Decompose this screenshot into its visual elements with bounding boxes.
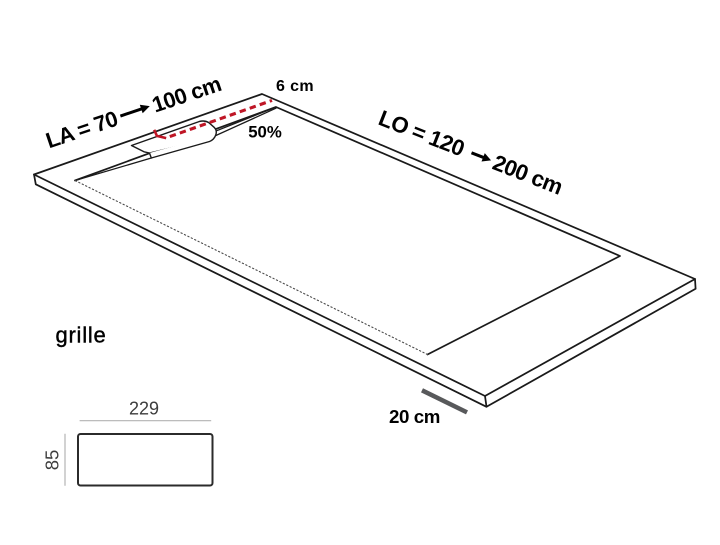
svg-text:20 cm: 20 cm xyxy=(389,406,440,427)
svg-text:6 cm: 6 cm xyxy=(276,78,314,95)
svg-text:grille: grille xyxy=(56,323,107,348)
svg-text:LA = 70: LA = 70 xyxy=(43,106,121,153)
svg-text:85: 85 xyxy=(42,450,63,471)
svg-text:200 cm: 200 cm xyxy=(489,150,566,200)
svg-text:LO = 120: LO = 120 xyxy=(375,105,468,161)
svg-text:229: 229 xyxy=(129,399,159,419)
svg-text:50%: 50% xyxy=(248,122,282,141)
